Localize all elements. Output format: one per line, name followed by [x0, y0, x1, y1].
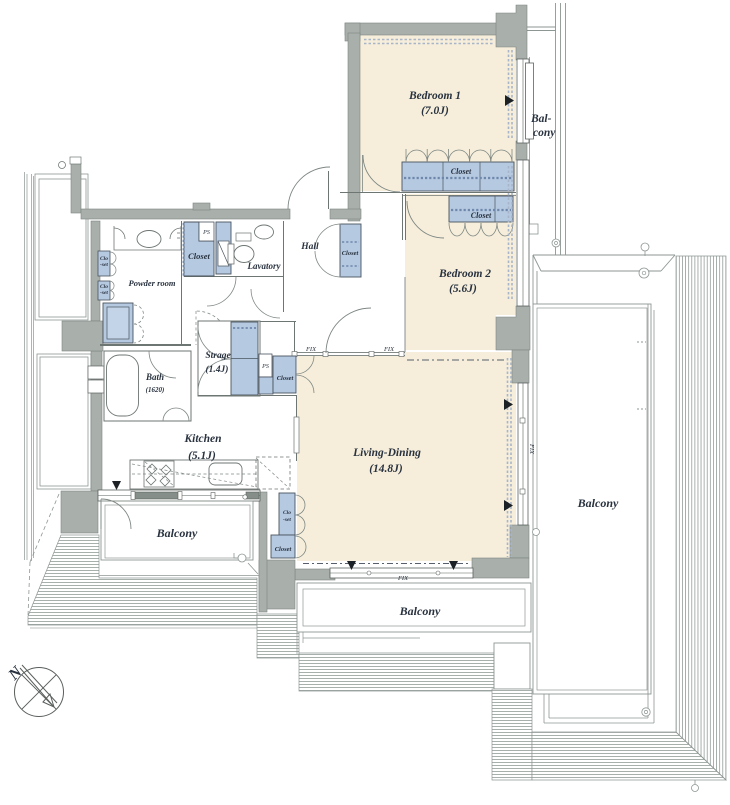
svg-text:Living-Dining: Living-Dining [352, 447, 421, 459]
svg-text:-set: -set [100, 290, 108, 296]
svg-text:(5.6J): (5.6J) [449, 283, 477, 295]
svg-text:PS: PS [261, 364, 269, 370]
svg-text:FIX: FIX [305, 346, 317, 353]
svg-text:Clo: Clo [283, 510, 291, 516]
svg-text:FIX: FIX [528, 443, 535, 455]
svg-text:Bath: Bath [145, 372, 164, 382]
svg-text:Closet: Closet [188, 251, 210, 261]
svg-text:Closet: Closet [275, 546, 292, 553]
svg-text:Powder room: Powder room [129, 278, 176, 288]
svg-text:(7.0J): (7.0J) [421, 105, 449, 117]
svg-text:cony: cony [533, 127, 556, 139]
svg-text:-set: -set [100, 262, 108, 268]
svg-text:PS: PS [202, 230, 210, 236]
svg-text:Closet: Closet [451, 167, 472, 176]
svg-text:Balcony: Balcony [399, 604, 441, 618]
svg-text:Bedroom 2: Bedroom 2 [438, 268, 491, 280]
svg-text:(1.4J): (1.4J) [206, 364, 229, 375]
svg-text:FIX: FIX [383, 346, 395, 353]
svg-text:Closet: Closet [471, 211, 492, 220]
svg-text:(14.8J): (14.8J) [369, 463, 403, 475]
svg-text:Lavatory: Lavatory [247, 261, 282, 271]
svg-text:(5.1J): (5.1J) [188, 450, 216, 462]
svg-text:Hall: Hall [300, 242, 319, 252]
svg-text:Bedroom 1: Bedroom 1 [408, 90, 461, 102]
svg-text:Bal-: Bal- [530, 113, 552, 125]
svg-text:Closet: Closet [277, 375, 294, 382]
svg-text:Kitchen: Kitchen [183, 433, 221, 445]
svg-text:Strage: Strage [205, 351, 231, 361]
svg-text:(1620): (1620) [146, 386, 165, 394]
svg-text:FIX: FIX [397, 575, 409, 582]
svg-text:Closet: Closet [342, 250, 359, 257]
svg-text:Balcony: Balcony [577, 496, 619, 510]
svg-text:Balcony: Balcony [156, 526, 198, 540]
svg-text:-set: -set [283, 517, 291, 523]
